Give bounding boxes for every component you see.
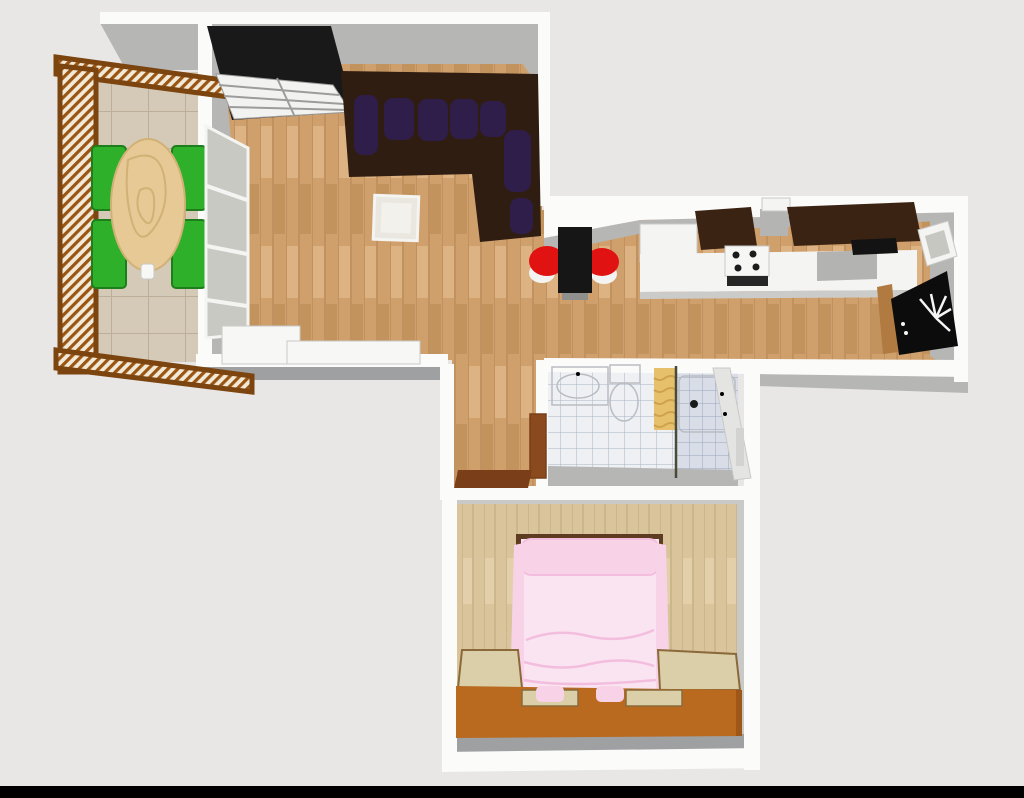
bedroom-bottom-wall: [442, 748, 760, 772]
door-hinge: [720, 392, 724, 396]
sofa-cushion: [354, 95, 378, 155]
sofa-cushion: [510, 198, 533, 234]
drawer-front: [626, 690, 682, 706]
sofa-cushion: [504, 130, 531, 192]
floor-plan-render: [0, 0, 1024, 798]
sideboard-low: [287, 341, 420, 364]
dark-cooktop: [851, 238, 898, 255]
floor-plan-stage: [0, 0, 1024, 798]
nightstand: [458, 650, 522, 688]
upper-cabinet: [695, 207, 757, 250]
side-table-top: [380, 202, 411, 233]
table-leg: [141, 264, 154, 279]
cooker-hood: [760, 209, 788, 236]
kitchen-small-window: [762, 198, 790, 211]
bathroom-entry-door: [530, 414, 546, 478]
bedroom-top-wall: [440, 486, 760, 500]
black-appliance-dot: [904, 331, 908, 335]
stove-burner: [733, 252, 740, 259]
sofa-cushion: [480, 101, 506, 137]
stove-burner: [753, 264, 760, 271]
letterbox-bar: [0, 786, 1024, 798]
living-room-top-wall: [100, 12, 550, 24]
hallway-left-wall: [440, 364, 454, 492]
right-outer-wall: [744, 360, 760, 770]
bench-cabinet: [658, 650, 740, 690]
bed-base-edge: [736, 690, 742, 736]
faucet: [576, 372, 580, 376]
upper-cabinet: [787, 202, 922, 246]
bed-foot-drape: [536, 686, 564, 702]
bedroom-left-wall: [442, 486, 457, 768]
kitchen-right-wall: [954, 196, 968, 382]
counter-appliance: [817, 250, 877, 281]
black-appliance-dot: [901, 322, 905, 326]
bedroom-door-threshold: [454, 470, 532, 488]
bar-table: [558, 227, 592, 293]
door-handle-slot: [736, 428, 744, 466]
sofa-cushion: [384, 98, 414, 140]
sofa-cushion: [450, 99, 478, 139]
door-hinge: [723, 412, 727, 416]
stove: [725, 246, 769, 276]
shower-drain: [690, 400, 698, 408]
bed-foot-drape: [596, 686, 624, 702]
sofa-cushion: [418, 99, 448, 141]
bed-pillow: [521, 539, 659, 575]
hallway-floor: [452, 356, 540, 490]
balcony-railing-left: [60, 66, 96, 372]
stove-burner: [750, 251, 757, 258]
balcony-table: [111, 139, 185, 271]
oven-front: [727, 276, 768, 286]
stove-burner: [735, 265, 742, 272]
